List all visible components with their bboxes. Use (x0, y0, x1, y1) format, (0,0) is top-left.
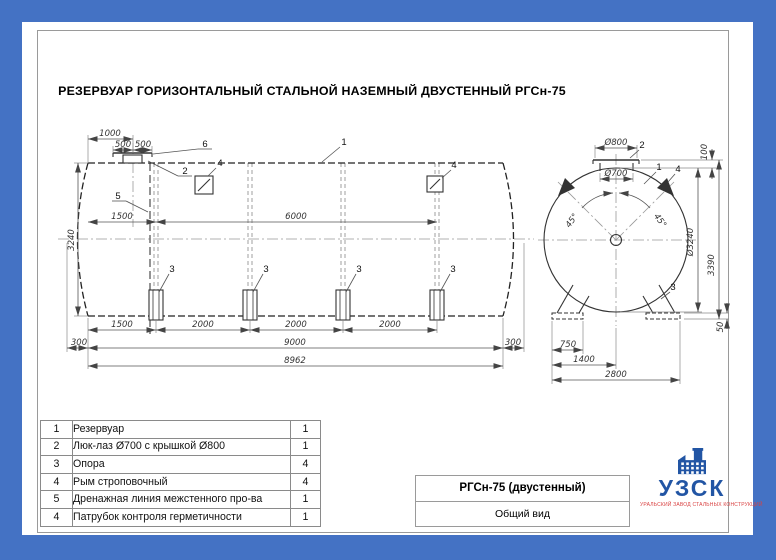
dim-700: Ø700 (604, 168, 628, 179)
manhole (113, 153, 152, 163)
dim-6000: 6000 (285, 212, 307, 222)
lifting-lug-left (558, 178, 575, 196)
callout-hatch-end: 2 (639, 140, 644, 151)
part-name-cell: Рым строповочный (73, 473, 291, 491)
dim-3240-end: Ø3240 (685, 228, 696, 257)
side-view: 1000 500 500 1500 6000 3240 1500 2000 20… (58, 129, 534, 369)
dim-800: Ø800 (604, 137, 628, 148)
part-qty-cell: 1 (291, 508, 321, 526)
dim-3240: 3240 (67, 229, 77, 251)
part-name-cell: Опора (73, 456, 291, 474)
callout-support-2: 3 (263, 264, 268, 275)
model-name: РГСн-75 (двустенный) (416, 476, 629, 502)
part-name-cell: Резервуар (73, 421, 291, 439)
dim-500-right: 500 (135, 140, 151, 150)
uzsk-logo: УЗСК УРАЛЬСКИЙ ЗАВОД СТАЛЬНЫХ КОНСТРУКЦИ… (640, 448, 744, 508)
dim-1000: 1000 (99, 129, 121, 139)
part-qty-cell: 1 (291, 491, 321, 509)
dim-45-left: 45° (564, 212, 581, 230)
dim-300-right: 300 (505, 338, 521, 348)
logo-subtitle: УРАЛЬСКИЙ ЗАВОД СТАЛЬНЫХ КОНСТРУКЦИЙ (640, 502, 744, 508)
table-row: 2 Люк-лаз Ø700 с крышкой Ø800 1 (41, 438, 321, 456)
dimensions-end (552, 148, 727, 380)
table-row: 4 Патрубок контроля герметичности 1 (41, 508, 321, 526)
table-row: 4 Рым строповочный 4 (41, 473, 321, 491)
part-qty-cell: 4 (291, 456, 321, 474)
callout-support-3: 3 (356, 264, 361, 275)
dim-2000-b: 2000 (285, 320, 307, 330)
dim-100: 100 (700, 144, 710, 160)
end-view: Ø800 Ø700 100 Ø3240 3390 50 45° 45° 750 … (538, 137, 729, 384)
part-number-cell: 3 (41, 456, 73, 474)
dim-50: 50 (716, 322, 726, 333)
part-qty-cell: 1 (291, 421, 321, 439)
callout-nozzle-left: 4 (217, 158, 222, 169)
callout-drain: 5 (115, 191, 120, 202)
callout-support-end: 3 (670, 282, 675, 293)
callout-hatch: 2 (182, 166, 187, 177)
table-row: 5 Дренажная линия межстенного про-ва 1 (41, 491, 321, 509)
table-row: 3 Опора 4 (41, 456, 321, 474)
part-qty-cell: 4 (291, 473, 321, 491)
callout-tank-end: 1 (656, 162, 661, 173)
dim-1500-mid: 1500 (111, 212, 133, 222)
dim-1500-bottom: 1500 (111, 320, 133, 330)
view-name: Общий вид (416, 502, 629, 527)
callout-cover: 6 (202, 139, 207, 150)
lifting-lug-right (657, 178, 674, 196)
part-number-cell: 5 (41, 491, 73, 509)
callout-lug: 4 (675, 164, 680, 175)
control-nozzle-left (195, 176, 213, 194)
callout-tank: 1 (341, 137, 346, 148)
dim-300-left: 300 (71, 338, 87, 348)
part-name-cell: Дренажная линия межстенного про-ва (73, 491, 291, 509)
dim-2800: 2800 (605, 370, 627, 380)
part-number-cell: 1 (41, 421, 73, 439)
control-nozzle-right (427, 176, 443, 192)
dim-1400: 1400 (573, 355, 595, 365)
dimensions-side (67, 139, 524, 366)
part-name-cell: Люк-лаз Ø700 с крышкой Ø800 (73, 438, 291, 456)
part-number-cell: 2 (41, 438, 73, 456)
drawing-sheet: РЕЗЕРВУАР ГОРИЗОНТАЛЬНЫЙ СТАЛЬНОЙ НАЗЕМН… (22, 22, 753, 535)
table-row: 1 Резервуар 1 (41, 421, 321, 439)
dim-3390: 3390 (707, 254, 717, 276)
dim-9000: 9000 (284, 338, 306, 348)
extension-lines-end (552, 145, 729, 384)
callout-nozzle-right: 4 (451, 160, 456, 171)
dim-750: 750 (560, 340, 576, 350)
part-name-cell: Патрубок контроля герметичности (73, 508, 291, 526)
dim-2000-a: 2000 (192, 320, 214, 330)
callout-support-1: 3 (169, 264, 174, 275)
part-qty-cell: 1 (291, 438, 321, 456)
dim-45-right: 45° (651, 212, 668, 230)
logo-abbr: УЗСК (640, 477, 744, 500)
title-block: РГСн-75 (двустенный) Общий вид (415, 475, 630, 527)
callout-support-4: 3 (450, 264, 455, 275)
parts-table: 1 Резервуар 1 2 Люк-лаз Ø700 с крышкой Ø… (40, 420, 321, 527)
factory-icon (675, 448, 709, 476)
dim-8962: 8962 (284, 356, 306, 366)
tank-shell (78, 163, 514, 316)
dim-2000-c: 2000 (379, 320, 401, 330)
dim-500-left: 500 (115, 140, 131, 150)
part-number-cell: 4 (41, 508, 73, 526)
blue-border: { "sheet": { "title": "РЕЗЕРВУАР ГОРИЗОН… (0, 0, 776, 560)
part-number-cell: 4 (41, 473, 73, 491)
